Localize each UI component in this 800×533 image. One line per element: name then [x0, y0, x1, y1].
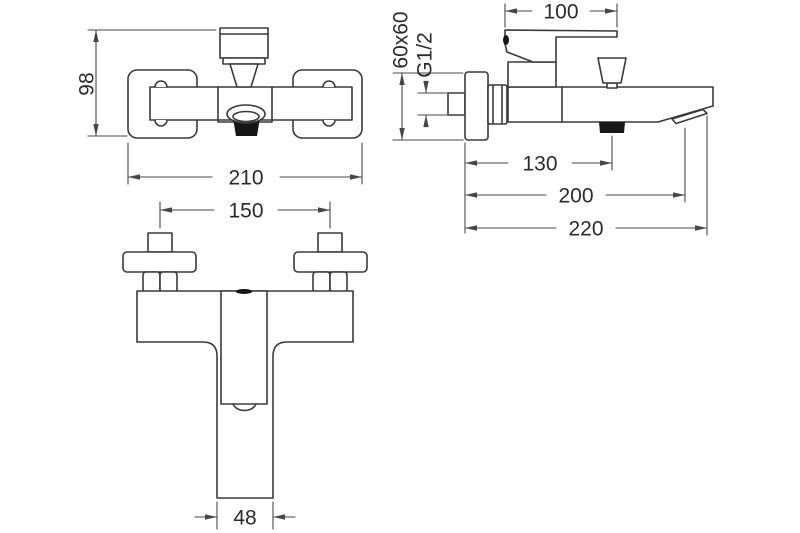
- dim-label-200: 200: [558, 184, 593, 207]
- side-view: 100 60x60 G1/2 130: [389, 0, 713, 240]
- handle-top-outline: [221, 291, 267, 404]
- hex-nut-facet: [313, 272, 330, 292]
- front-view: 98 210: [75, 28, 362, 189]
- dim-label-130: 130: [522, 152, 557, 175]
- dimension-spout-48: 48: [195, 502, 295, 529]
- dimension-reach-200: 200: [465, 128, 685, 207]
- dimension-width-210: 210: [128, 143, 362, 189]
- handle-collar: [223, 58, 265, 64]
- dim-label-100: 100: [543, 0, 578, 23]
- dimension-thread-g12: G1/2: [413, 32, 448, 127]
- dim-label-48: 48: [233, 506, 256, 529]
- screw-cover: [323, 120, 335, 126]
- hex-nut: [488, 85, 507, 124]
- handle-neck: [230, 64, 258, 87]
- screw-cover: [155, 120, 167, 126]
- handle-tip-dark: [236, 289, 252, 294]
- hex-nut-facet: [330, 272, 347, 292]
- dim-label-220: 220: [568, 217, 603, 240]
- hex-nut-facet: [160, 272, 177, 292]
- screw-cover: [323, 81, 335, 87]
- escutcheon-right: [294, 252, 367, 272]
- cartridge-cover: [508, 62, 556, 87]
- connection-stub-right: [318, 233, 342, 252]
- shower-outlet-dark: [599, 122, 625, 133]
- hex-nut-facet: [143, 272, 160, 292]
- connection-stub: [448, 93, 465, 115]
- diverter-knob: [598, 58, 626, 83]
- dim-label-g12: G1/2: [413, 32, 436, 78]
- dimension-handle-100: 100: [505, 0, 617, 27]
- escutcheon-plate: [465, 72, 488, 140]
- bath-mixer-technical-drawing: 98 210: [0, 0, 800, 533]
- handle-indicator-dot: [503, 35, 509, 45]
- dimension-outlet-130: 130: [465, 136, 612, 175]
- dim-label-210: 210: [228, 166, 263, 189]
- dimension-centers-150: 150: [160, 199, 330, 228]
- screw-cover: [155, 81, 167, 87]
- escutcheon-left: [123, 252, 196, 272]
- dimension-total-220: 220: [465, 116, 707, 240]
- dim-label-60x60: 60x60: [389, 11, 412, 68]
- aerator-inner: [233, 112, 259, 122]
- dim-label-98: 98: [75, 72, 98, 95]
- connection-stub-left: [148, 233, 172, 252]
- top-view: 150 48: [123, 199, 367, 529]
- technical-drawing-page: 98 210: [0, 0, 800, 533]
- dim-label-150: 150: [228, 199, 263, 222]
- handle-lever: [220, 28, 268, 58]
